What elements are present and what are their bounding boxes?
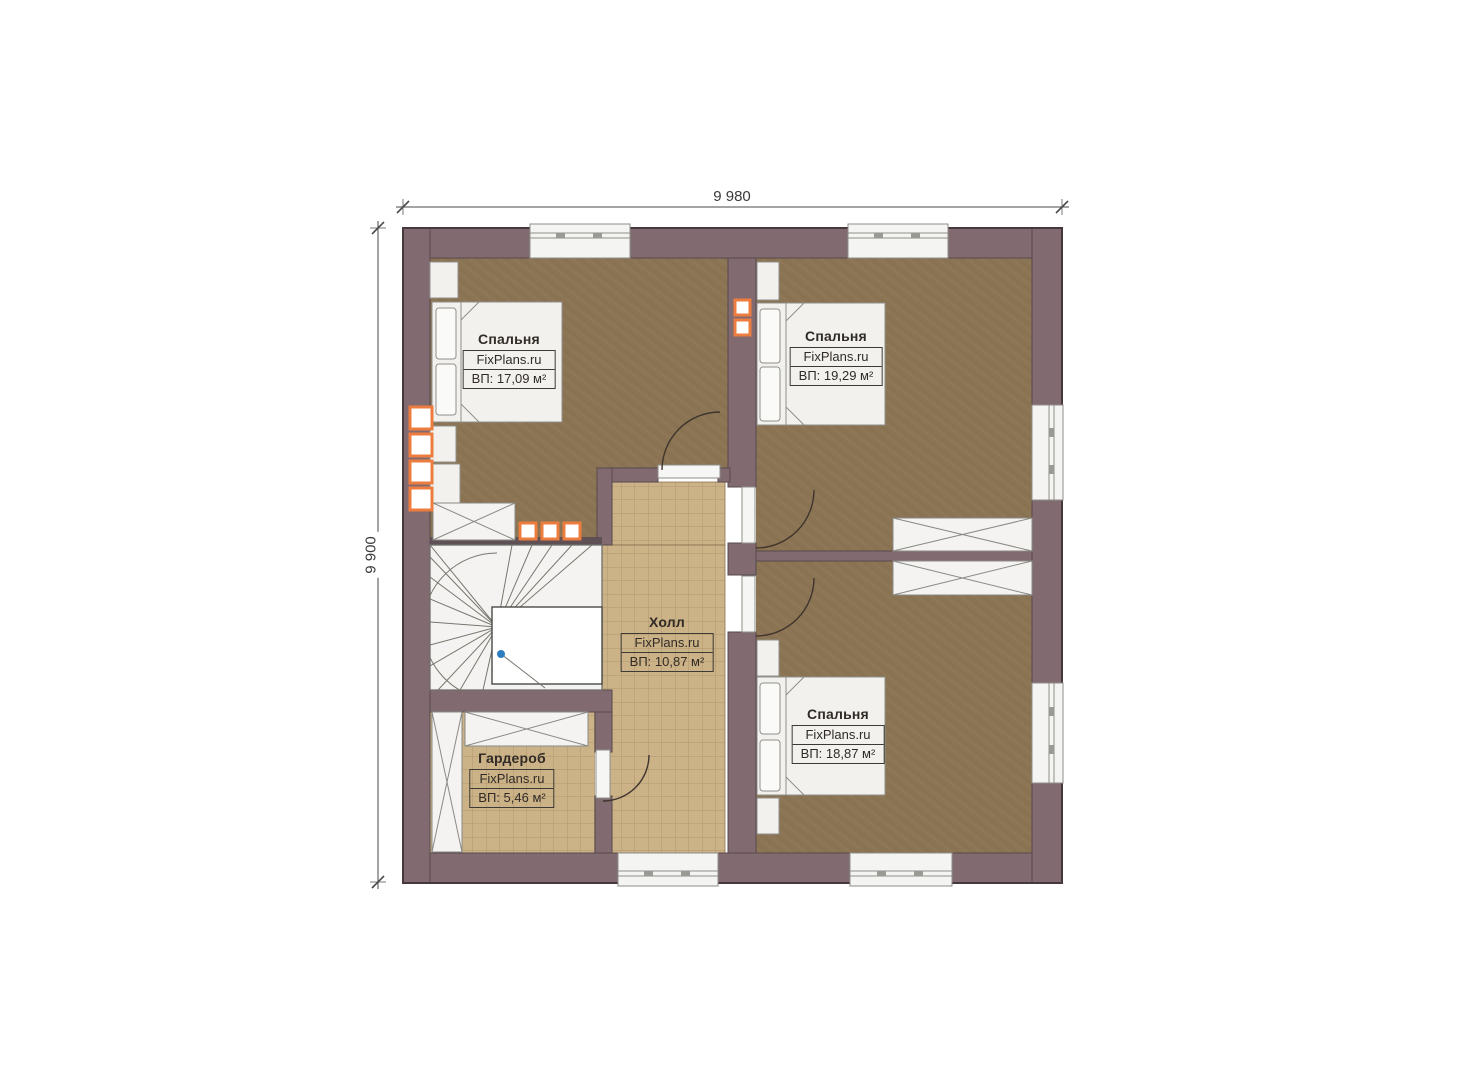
- staircase: [423, 545, 602, 700]
- wardrobe-unit-top-right: [893, 518, 1032, 551]
- stair-void: [492, 607, 602, 684]
- nightstand-top-right: [757, 262, 779, 300]
- bed-top-left: [432, 302, 562, 422]
- dimension-width-label: 9 980: [709, 188, 755, 205]
- wall-niche-left: [430, 464, 460, 504]
- dimension-height-label: 9 900: [363, 532, 380, 578]
- window-top-2: [848, 224, 948, 258]
- nightstand-bottom-right-a: [757, 640, 779, 676]
- wardrobe-unit-top: [465, 712, 588, 746]
- bed-bottom-right: [757, 677, 885, 795]
- floor-plan-page: 9 980 9 900 Спальня FixPlans.ru ВП: 17,0…: [0, 0, 1474, 1080]
- window-top-1: [530, 224, 630, 258]
- window-right-2: [1032, 683, 1063, 783]
- bed-top-right: [757, 303, 885, 425]
- window-right-1: [1032, 405, 1063, 500]
- window-bottom-1: [618, 853, 718, 886]
- wardrobe-unit-top-left: [433, 503, 515, 540]
- floor-plan-drawing: [0, 0, 1474, 1080]
- vent-group-stairs: [520, 523, 580, 539]
- stair-marker-dot: [497, 650, 505, 658]
- window-bottom-2: [850, 853, 952, 886]
- wardrobe-unit-bottom-right: [893, 561, 1032, 595]
- wardrobe-unit-tall: [432, 712, 462, 852]
- nightstand-top-left-a: [430, 262, 458, 298]
- nightstand-bottom-right-b: [757, 798, 779, 834]
- nightstand-top-left-b: [430, 426, 456, 462]
